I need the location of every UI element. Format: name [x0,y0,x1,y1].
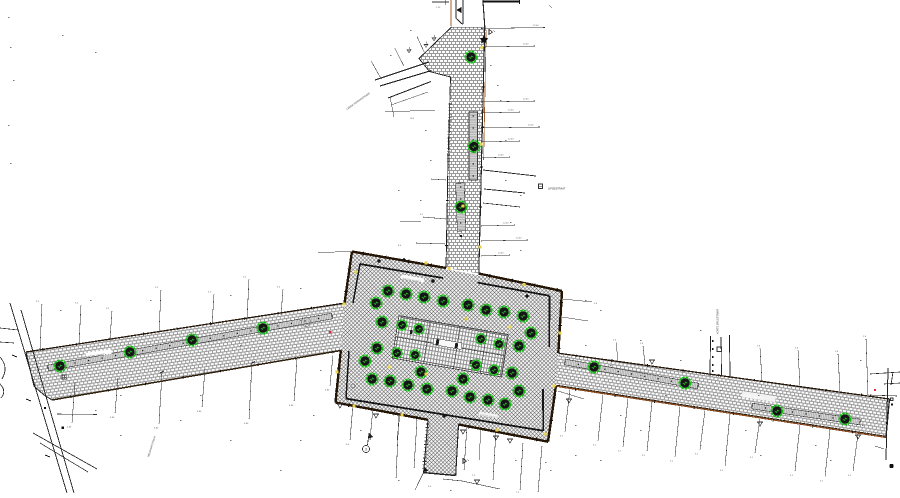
svg-text:KORTE BRUGSTRAAT: KORTE BRUGSTRAAT [717,308,720,334]
svg-text:12.40: 12.40 [498,155,504,157]
svg-text:12.40: 12.40 [508,139,514,141]
svg-text:3: 3 [365,447,367,451]
svg-text:12.40: 12.40 [503,223,509,225]
svg-text:12.40: 12.40 [533,25,539,27]
svg-text:12.40: 12.40 [523,99,529,101]
svg-text:12.40: 12.40 [508,110,514,112]
svg-text:12.40: 12.40 [498,253,504,255]
svg-text:12.40: 12.40 [523,44,529,46]
svg-text:LIPSESTRAAT: LIPSESTRAAT [548,187,566,191]
svg-text:12.40: 12.40 [528,125,534,127]
svg-text:12.40: 12.40 [516,238,522,240]
